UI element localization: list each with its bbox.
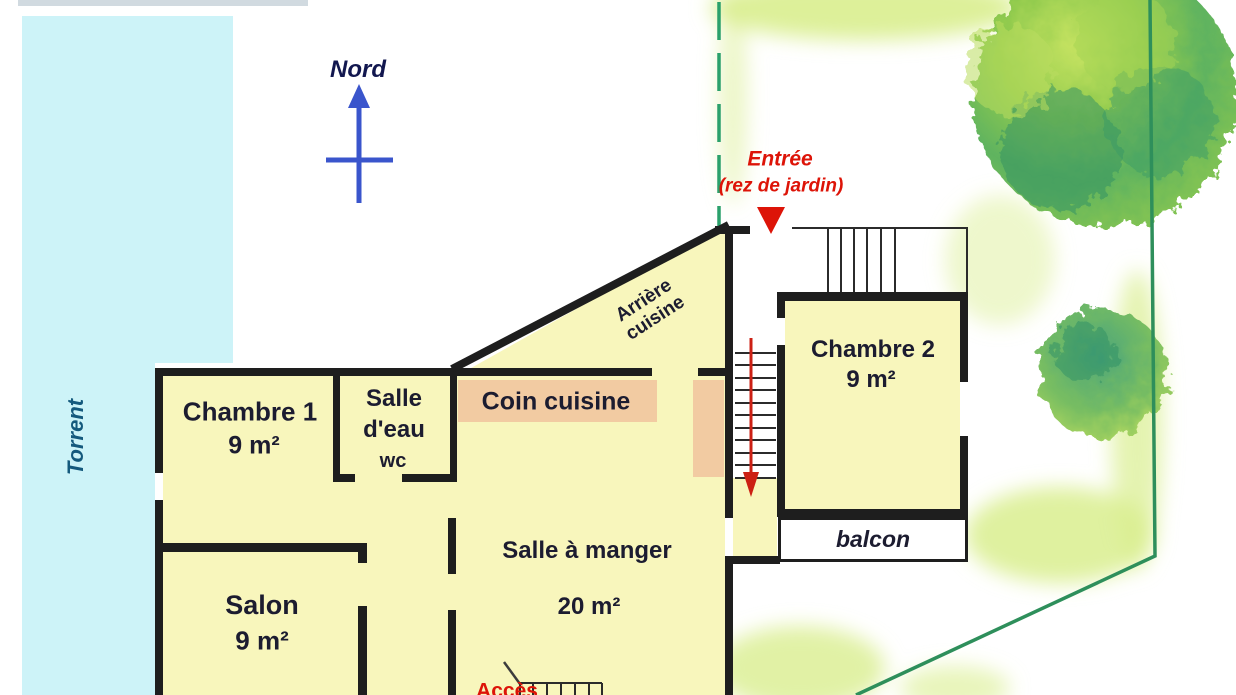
wall-shower-right <box>450 376 457 482</box>
bedroom2-area: 9 m² <box>846 367 895 393</box>
bedroom1-area: 9 m² <box>228 432 279 460</box>
access-label: Accès <box>476 679 538 695</box>
wall-partition-lower <box>448 610 456 695</box>
wall-shower-bottom-a <box>333 474 355 482</box>
entrance-arrow-icon <box>757 207 785 234</box>
tree-large <box>965 0 1236 227</box>
bedroom2-fill <box>785 300 960 509</box>
wall-bedroom2-bottom <box>777 509 968 517</box>
wall-bedroom2-left-stub <box>777 301 785 318</box>
wall-bedroom2-left <box>777 345 785 517</box>
wall-living-top <box>155 543 367 552</box>
bedroom2-name: Chambre 2 <box>811 337 935 363</box>
wall-living-right-stub <box>358 543 367 563</box>
north-arrowhead <box>348 84 370 108</box>
interior-stairs <box>735 353 776 478</box>
balcony-box: balcon <box>778 517 968 562</box>
torrent-label: Torrent <box>64 399 88 475</box>
bedroom1-name: Chambre 1 <box>183 398 317 427</box>
wall-bedroom2-top <box>777 292 968 301</box>
living-room-name: Salon <box>225 591 299 621</box>
shower-room-line3: wc <box>380 450 407 472</box>
vestibule-fill <box>733 478 777 558</box>
wall-shower-bottom-b <box>402 474 457 482</box>
wall-bedroom2-right-upper <box>960 292 968 382</box>
dining-room-name: Salle à manger <box>502 538 671 564</box>
floor-plan-canvas: balcon Nord Torrent Entrée (rez de jardi… <box>0 0 1236 695</box>
wall-outer-top <box>155 368 652 376</box>
torrent-water-strip <box>22 16 155 695</box>
top-edge-streak <box>18 0 308 6</box>
north-compass-icon <box>326 100 393 203</box>
wall-shower-left <box>333 376 340 480</box>
dining-room-area: 20 m² <box>558 594 621 620</box>
tree-small <box>1038 309 1168 439</box>
wall-partition-upper <box>448 518 456 574</box>
wall-vestibule-bottom <box>725 556 780 564</box>
wall-outer-left-lower <box>155 500 163 695</box>
shower-room-line1: Salle <box>366 386 422 412</box>
entrance-title: Entrée <box>747 147 812 170</box>
wall-living-right <box>358 606 367 695</box>
kitchen-side-counter <box>693 380 724 477</box>
wall-outer-left-upper <box>155 368 163 473</box>
wall-bedroom2-right-lower <box>960 436 968 517</box>
wall-right-mid <box>725 376 733 518</box>
living-room-area: 9 m² <box>235 627 288 656</box>
north-label: Nord <box>330 57 386 83</box>
entrance-subtitle: (rez de jardin) <box>719 177 844 198</box>
wall-right-upper <box>725 232 733 376</box>
shower-room-line2: d'eau <box>363 417 425 443</box>
balcony-label: balcon <box>836 526 910 553</box>
wall-right-lower <box>725 556 733 695</box>
kitchen-corner-label: Coin cuisine <box>482 388 631 416</box>
exterior-stairs <box>792 228 968 293</box>
